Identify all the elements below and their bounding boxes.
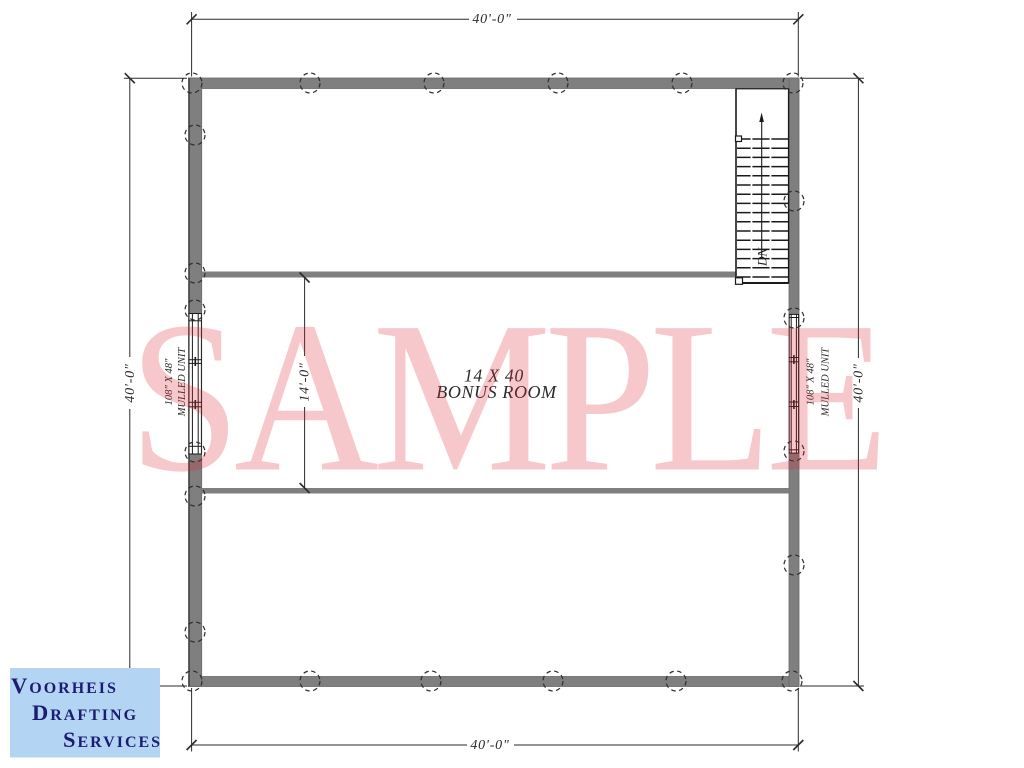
svg-text:SAMPLE: SAMPLE bbox=[129, 278, 882, 517]
svg-text:Services: Services bbox=[63, 727, 162, 752]
svg-text:Voorheis: Voorheis bbox=[11, 673, 118, 698]
svg-text:40'-0": 40'-0" bbox=[470, 738, 509, 753]
svg-text:40'-0": 40'-0" bbox=[472, 12, 511, 27]
svg-text:DN: DN bbox=[755, 247, 770, 267]
svg-text:Drafting: Drafting bbox=[32, 700, 138, 725]
